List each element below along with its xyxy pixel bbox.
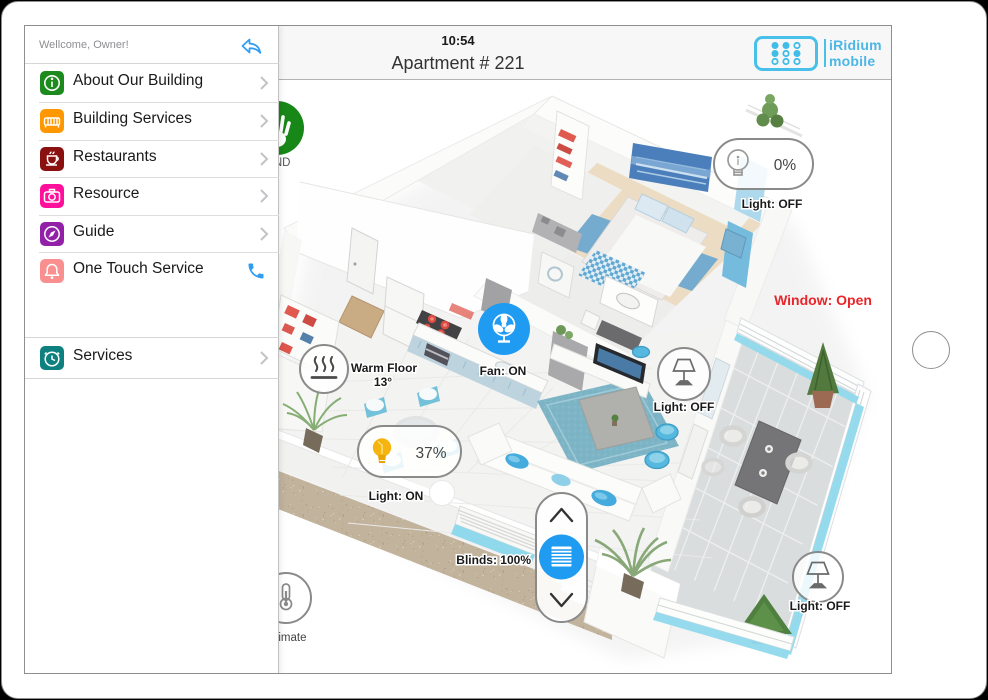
svg-text:13°: 13°	[374, 375, 392, 389]
svg-text:Light: OFF: Light: OFF	[654, 400, 715, 414]
svg-text:Warm Floor: Warm Floor	[351, 361, 418, 375]
svg-text:Light: OFF: Light: OFF	[742, 197, 803, 211]
svg-text:37%: 37%	[415, 445, 446, 462]
svg-text:Fan: ON: Fan: ON	[480, 364, 527, 378]
svg-text:Light: OFF: Light: OFF	[790, 599, 851, 613]
svg-text:Blinds: 100%: Blinds: 100%	[456, 553, 531, 567]
svg-text:Window: Open: Window: Open	[774, 292, 872, 308]
svg-text:Light: ON: Light: ON	[369, 489, 424, 503]
svg-text:0%: 0%	[774, 157, 797, 174]
